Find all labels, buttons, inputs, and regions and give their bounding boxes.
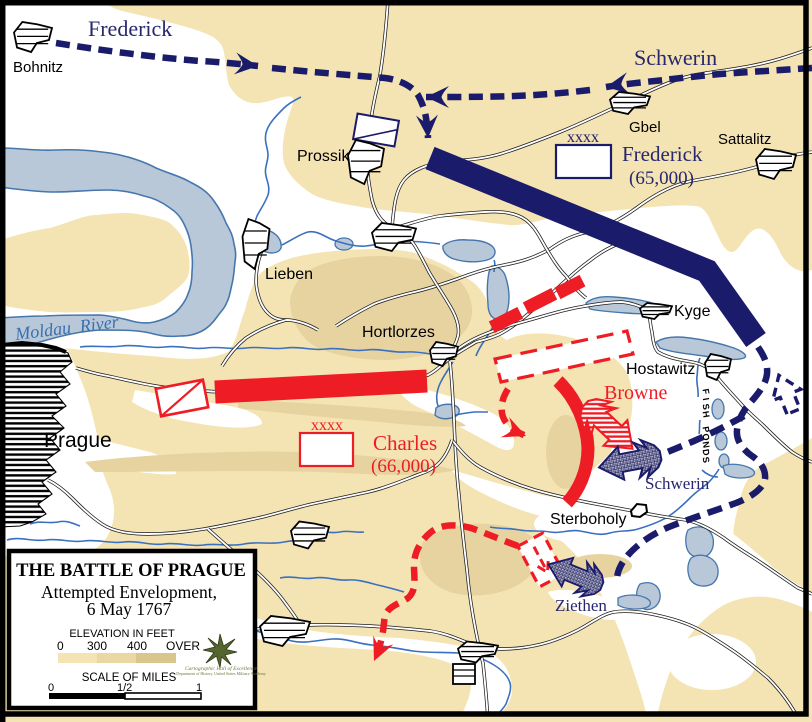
- svg-text:THE BATTLE OF PRAGUE: THE BATTLE OF PRAGUE: [16, 561, 246, 581]
- svg-text:Sattalitz: Sattalitz: [718, 131, 771, 148]
- svg-text:6 May 1767: 6 May 1767: [87, 599, 172, 619]
- svg-text:Browne: Browne: [604, 382, 667, 404]
- svg-text:Frederick: Frederick: [622, 142, 703, 166]
- svg-text:Prossik: Prossik: [297, 148, 350, 165]
- svg-text:Prague: Prague: [44, 429, 112, 452]
- svg-text:0: 0: [48, 682, 54, 694]
- svg-text:Gbel: Gbel: [629, 119, 661, 136]
- svg-text:OVER: OVER: [166, 639, 200, 653]
- svg-text:300: 300: [87, 639, 107, 653]
- svg-text:xxxx: xxxx: [311, 417, 343, 434]
- svg-text:ELEVATION IN FEET: ELEVATION IN FEET: [69, 628, 175, 640]
- svg-text:Schwerin: Schwerin: [634, 45, 717, 70]
- svg-text:Ziethen: Ziethen: [555, 596, 607, 615]
- svg-text:Sterboholy: Sterboholy: [550, 511, 627, 528]
- svg-text:Bohnitz: Bohnitz: [13, 59, 63, 76]
- svg-text:Frederick: Frederick: [88, 16, 172, 41]
- svg-text:0: 0: [57, 639, 64, 653]
- svg-text:Hortlorzes: Hortlorzes: [362, 324, 435, 341]
- svg-text:Hostawitz: Hostawitz: [626, 361, 695, 378]
- svg-text:Schwerin: Schwerin: [645, 474, 710, 493]
- svg-text:(66,000): (66,000): [371, 456, 436, 477]
- svg-text:Charles: Charles: [373, 431, 437, 455]
- svg-text:(65,000): (65,000): [629, 168, 694, 189]
- svg-text:400: 400: [127, 639, 147, 653]
- svg-text:Kyge: Kyge: [674, 303, 711, 320]
- svg-text:Lieben: Lieben: [265, 266, 313, 283]
- svg-text:xxxx: xxxx: [567, 129, 599, 146]
